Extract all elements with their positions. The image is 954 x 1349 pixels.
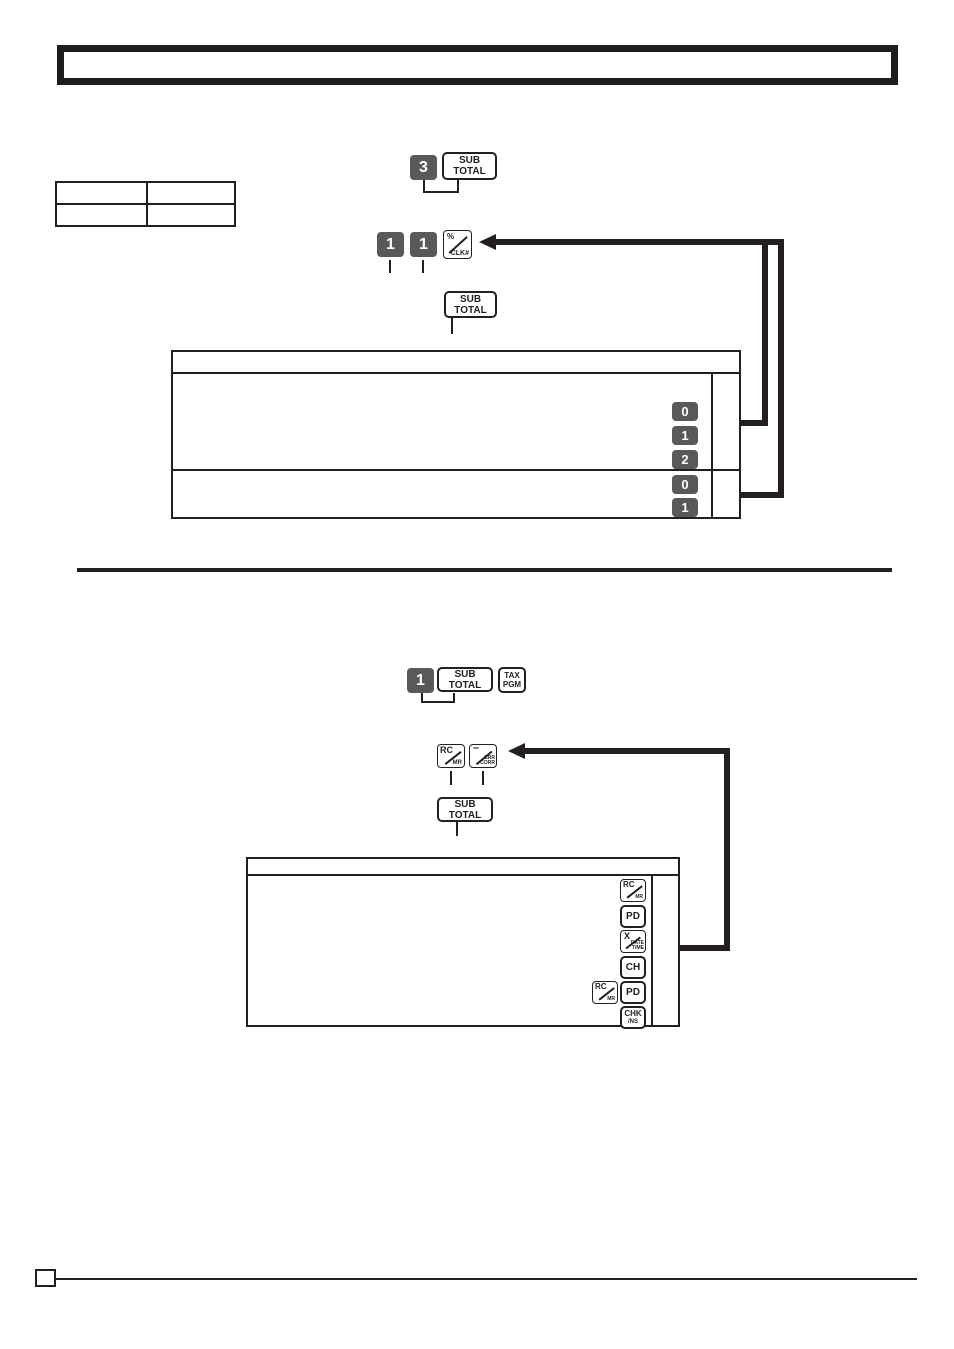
x-date-time-key: X DATE TIME	[620, 930, 646, 953]
ch-label: CH	[626, 962, 640, 973]
digit-0-label: 0	[681, 477, 688, 492]
rc-label: RC	[623, 880, 635, 889]
date-time-label: DATE TIME	[631, 941, 644, 951]
key-pointer-tick	[456, 822, 458, 836]
pd-key: PD	[620, 981, 646, 1004]
digit-1-key: 1	[410, 232, 437, 257]
chk-ns-key: CHK /NS	[620, 1006, 646, 1029]
rc-mr-key: RC MR	[437, 744, 465, 768]
digit-1-label: 1	[416, 672, 425, 690]
digit-2-key: 2	[672, 450, 698, 469]
page-number-box	[35, 1269, 56, 1287]
chk-label: CHK	[624, 1010, 641, 1018]
subtotal-label-bottom: TOTAL	[454, 305, 486, 316]
percent-clerk-key: % CLK#	[443, 230, 472, 259]
connector-horizontal-inner	[741, 420, 768, 426]
digit-1-key: 1	[672, 498, 698, 517]
subtotal-key: SUB TOTAL	[442, 152, 497, 180]
rc-label: RC	[440, 745, 453, 755]
info-table-cell	[147, 182, 235, 204]
result-table-1-row-divider	[171, 469, 741, 471]
key-pointer-tick	[482, 771, 484, 785]
digit-3-label: 3	[419, 159, 428, 177]
minus-err-corr-key: – ERR CORR	[469, 744, 497, 768]
percent-label: %	[447, 232, 454, 241]
info-table	[55, 181, 236, 227]
result-table-2-column-divider	[651, 874, 653, 1027]
digit-1-label: 1	[681, 428, 688, 443]
subtotal-label-top: SUB	[454, 799, 475, 810]
key-pointer-tick	[450, 771, 452, 785]
subtotal-key: SUB TOTAL	[437, 667, 493, 692]
arrow-left-icon	[508, 743, 525, 759]
subtotal-label-bottom: TOTAL	[453, 166, 485, 177]
result-table-2-header-divider	[246, 874, 680, 876]
mr-label: MR	[635, 894, 643, 900]
key-pointer-tick	[389, 260, 391, 273]
connector-vertical-outer	[778, 239, 784, 498]
subtotal-key: SUB TOTAL	[437, 797, 493, 822]
digit-1-label: 1	[681, 500, 688, 515]
key-pointer-tick	[451, 318, 453, 334]
rc-mr-key: RC MR	[620, 879, 646, 902]
err-corr-label: ERR CORR	[480, 756, 495, 766]
digit-1-label: 1	[419, 236, 428, 254]
digit-0-key: 0	[672, 402, 698, 421]
subtotal-label-top: SUB	[460, 294, 481, 305]
subtotal-label-bottom: TOTAL	[449, 810, 481, 821]
time-label: TIME	[631, 946, 644, 951]
connector-horizontal	[678, 945, 730, 951]
arrow-shaft	[494, 239, 784, 245]
pd-label: PD	[626, 987, 640, 998]
subtotal-label-bottom: TOTAL	[449, 680, 481, 691]
subtotal-label-top: SUB	[459, 155, 480, 166]
rc-label: RC	[595, 982, 607, 991]
footer-rule	[56, 1278, 917, 1280]
tax-pgm-key: TAX PGM	[498, 667, 526, 693]
section-divider	[77, 568, 892, 572]
digit-3-key: 3	[410, 155, 437, 180]
digit-0-key: 0	[672, 475, 698, 494]
digit-1-key: 1	[407, 668, 434, 693]
key-pointer-tick	[422, 260, 424, 273]
rc-mr-key: RC MR	[592, 981, 618, 1004]
result-table-1-header-divider	[171, 372, 741, 374]
digit-1-label: 1	[386, 236, 395, 254]
digit-1-key: 1	[377, 232, 404, 257]
digit-2-label: 2	[681, 452, 688, 467]
mr-label: MR	[607, 996, 615, 1002]
subtotal-label-top: SUB	[454, 669, 475, 680]
info-table-cell	[56, 182, 147, 204]
subtotal-key: SUB TOTAL	[444, 291, 497, 318]
x-label: X	[624, 931, 630, 941]
tax-label: TAX	[504, 671, 519, 680]
key-connector-bracket	[423, 180, 459, 193]
connector-vertical	[724, 748, 730, 951]
digit-1-key: 1	[672, 426, 698, 445]
result-table-1-column-divider	[711, 372, 713, 519]
ns-label: /NS	[628, 1018, 638, 1026]
clerk-label: CLK#	[451, 250, 469, 257]
arrow-shaft	[524, 748, 730, 754]
info-table-cell	[147, 204, 235, 226]
connector-horizontal-outer	[741, 492, 784, 498]
connector-vertical-inner	[762, 239, 768, 426]
corr-label: CORR	[480, 761, 495, 766]
info-table-cell	[56, 204, 147, 226]
section-title-bar	[57, 45, 898, 85]
pgm-label: PGM	[503, 680, 521, 689]
pd-key: PD	[620, 905, 646, 928]
minus-label: –	[473, 742, 479, 754]
key-connector-bracket	[421, 693, 455, 703]
digit-0-label: 0	[681, 404, 688, 419]
ch-key: CH	[620, 956, 646, 979]
pd-label: PD	[626, 911, 640, 922]
mr-label: MR	[453, 760, 462, 766]
result-table-1	[171, 350, 741, 519]
